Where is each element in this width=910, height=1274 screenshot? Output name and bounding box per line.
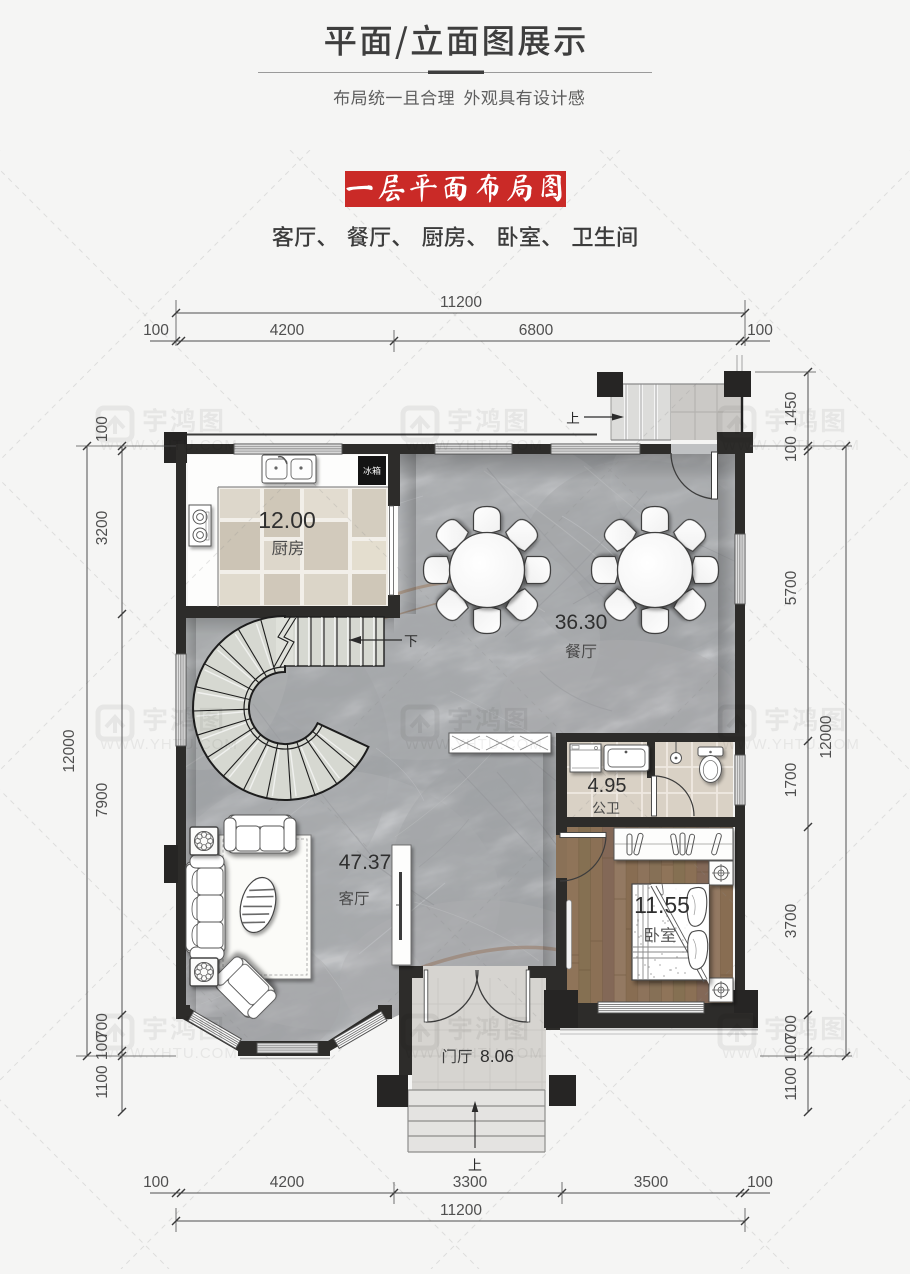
svg-text:3300: 3300: [453, 1174, 488, 1191]
svg-text:100: 100: [143, 1174, 169, 1191]
svg-text:3200: 3200: [94, 510, 111, 545]
svg-text:11.55: 11.55: [634, 892, 690, 918]
svg-text:12000: 12000: [818, 715, 835, 758]
svg-text:12000: 12000: [61, 729, 78, 772]
svg-text:4200: 4200: [270, 1174, 305, 1191]
svg-text:100: 100: [783, 1036, 800, 1062]
svg-text:3700: 3700: [783, 903, 800, 938]
svg-text:11200: 11200: [440, 294, 482, 311]
svg-text:1700: 1700: [783, 762, 800, 797]
svg-text:5700: 5700: [783, 570, 800, 605]
svg-text:100: 100: [747, 1174, 773, 1191]
svg-text:36.30: 36.30: [555, 611, 608, 634]
svg-text:7900: 7900: [94, 782, 111, 817]
svg-text:100: 100: [747, 322, 773, 339]
svg-text:4200: 4200: [270, 322, 305, 339]
svg-text:6800: 6800: [519, 322, 554, 339]
svg-text:1450: 1450: [783, 391, 800, 426]
svg-text:100: 100: [783, 436, 800, 462]
svg-text:47.37: 47.37: [339, 851, 392, 874]
svg-text:100: 100: [94, 416, 111, 442]
svg-text:1100: 1100: [94, 1065, 111, 1099]
svg-text:4.95: 4.95: [588, 775, 627, 797]
svg-text:11200: 11200: [440, 1202, 482, 1219]
svg-text:100: 100: [143, 322, 169, 339]
svg-text:3500: 3500: [634, 1174, 669, 1191]
svg-text:1100: 1100: [783, 1067, 800, 1101]
svg-text:12.00: 12.00: [258, 507, 316, 533]
